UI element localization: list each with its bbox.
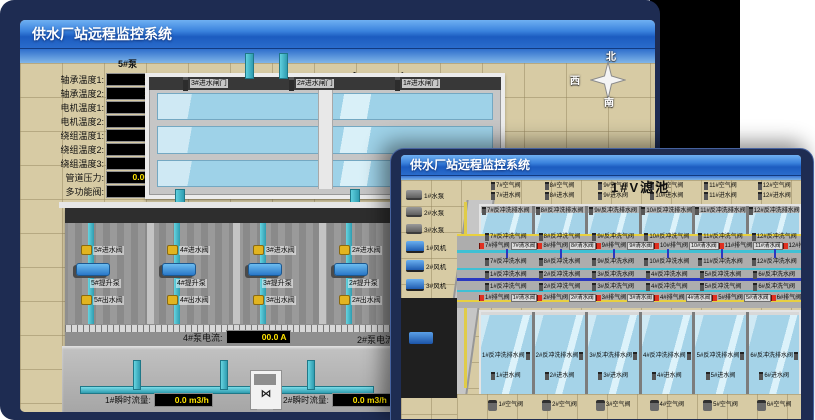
valve-icon[interactable] [757,400,766,411]
valve-icon[interactable] [700,271,704,279]
pump-label: 3#提升泵 [262,279,293,288]
valve-item[interactable]: 12#进水阀 [747,192,801,200]
parameter-label: 电机温度2: [28,115,104,128]
valve-item[interactable]: 4#排气阀 4#清水阀 [654,294,712,302]
meter-label: 4#泵电流: [183,331,223,344]
valve-label: 6#反冲洗排水阀 [750,353,793,360]
water-header-pipe [457,268,801,270]
parameter-label: 管道压力: [28,171,104,184]
valve-item[interactable]: 12#空气阀 [747,182,801,190]
valve-icon[interactable] [644,258,648,266]
outlet-valve-icon[interactable] [167,295,178,305]
valve-icon[interactable] [542,400,551,411]
valve-label: 6#排气阀 [777,295,801,302]
pump-icon[interactable] [162,263,196,276]
valve-icon[interactable] [704,182,708,190]
valve-label: 6#反冲洗气阀 [758,284,795,291]
inlet-valve-label: 2#进水阀 [351,246,382,255]
valve-icon[interactable] [592,271,596,279]
front-window-titlebar[interactable]: 供水厂站远程监控系统 [401,155,801,176]
water-pump-item: 3#水泵 [401,220,465,237]
valve-label: 5#反冲洗水阀 [705,272,742,279]
valve-label: 5#排气阀 [718,295,743,302]
valve-label: 1#排气阀 [485,295,510,302]
valve-item[interactable]: 12#反冲洗水阀 [747,258,801,266]
valve-item[interactable]: 1#排气阀 1#清水阀 [479,294,537,302]
valve-icon[interactable] [592,233,596,241]
desktop: 供水厂站远程监控系统 取水泵房 北 西 南 东 [0,0,815,420]
valve-item[interactable]: 2#反冲洗水阀 [533,271,587,279]
pump-icon[interactable] [406,190,422,200]
valve-label: 4#进水阀 [657,373,682,380]
valve-item[interactable]: 5#进水阀 [694,372,748,380]
back-window-title: 供水厂站远程监控系统 [32,26,172,42]
valve-icon[interactable] [758,192,762,200]
pump-bay: 5#进水阀 5#提升泵 5#出水阀 [68,223,154,324]
valve-label: 12#空气阀 [763,183,791,190]
backwash-drain-row-top: 7#反冲洗排水阀 8#反冲洗排水阀 9#反冲洗排水阀 10#反冲洗排水阀 [479,207,801,215]
water-header-pipe [457,250,801,253]
valve-icon[interactable] [545,372,549,380]
valve-item[interactable]: 8#空气阀 [533,182,587,190]
valve-icon[interactable] [650,400,659,411]
valve-label: 9#反冲洗排水阀 [594,208,637,215]
valve-label: 3#进水阀 [603,373,628,380]
parameter-label: 绕组温度1: [28,129,104,142]
valve-label: 3#反冲洗排水阀 [589,353,632,360]
valve-label: 4#反冲洗水阀 [651,272,688,279]
pump-icon[interactable] [334,263,368,276]
valve-icon[interactable] [759,372,763,380]
valve-label: 3#空气阀 [606,402,631,409]
valve-item[interactable]: 12#反冲洗气阀 [747,233,801,241]
backwash-water-row-bottom: 1#反冲洗水阀 2#反冲洗水阀 3#反冲洗水阀 4#反冲洗水阀 [479,271,801,279]
blower-icon[interactable] [406,241,424,253]
backwash-air-row-top: 7#反冲洗气阀 8#反冲洗气阀 9#反冲洗气阀 10#反冲洗气阀 [479,233,801,241]
valve-icon[interactable] [598,182,602,190]
inlet-valve-icon[interactable] [253,245,264,255]
valve-icon[interactable] [545,182,549,190]
valve-icon[interactable] [545,192,549,200]
bay-number [65,208,144,223]
valve-icon[interactable] [539,233,543,241]
scene-title: 1#V滤池 [611,177,670,196]
valve-icon[interactable] [539,258,543,266]
valve-item[interactable]: 6#反冲洗排水阀 [747,352,801,360]
inlet-valve-label: 4#进水阀 [179,246,210,255]
gate-valve-row: 3#进水闸门 2#进水闸门 1#进水闸门 [149,79,501,91]
valve-item[interactable]: 1#反冲洗水阀 [479,271,533,279]
valve-icon[interactable] [485,283,489,291]
valve-label: 5#反冲洗排水阀 [697,353,740,360]
valve-item[interactable]: 7#反冲洗水阀 [479,258,533,266]
inlet-valve-icon[interactable] [339,245,350,255]
compass-south-label: 南 [604,94,614,109]
backwash-drain-row-bottom: 1#反冲洗排水阀 2#反冲洗排水阀 3#反冲洗排水阀 4#反冲洗排水阀 [479,352,801,360]
valve-item[interactable]: 10#反冲洗气阀 [640,233,694,241]
parameter-label: 电机温度1: [28,101,104,114]
clean-water-valve-label[interactable]: 1#清水阀 [511,294,538,302]
blower-icon[interactable] [406,260,424,272]
valve-icon[interactable] [794,352,798,360]
pump-label: 2#水泵 [424,207,444,217]
alarm-indicator-icon [479,243,484,249]
valve-label: 2#进水阀 [550,373,575,380]
parameter-label: 轴承温度2: [28,87,104,100]
valve-icon[interactable] [491,192,495,200]
valve-label: 2#反冲洗排水阀 [536,353,579,360]
valve-label: 4#反冲洗气阀 [651,284,688,291]
gate-valve-label: 2#进水闸门 [296,79,334,88]
valve-item[interactable]: 6#反冲洗水阀 [747,271,801,279]
valve-icon[interactable] [485,233,489,241]
front-window-title: 供水厂站远程监控系统 [410,158,530,172]
valve-item[interactable]: 4#反冲洗水阀 [640,271,694,279]
valve-item[interactable]: 7#进水阀 [479,192,533,200]
outlet-valve-icon[interactable] [339,295,350,305]
blower-label: 2#风机 [426,261,446,271]
valve-label: 8#反冲洗排水阀 [541,208,584,215]
valve-label: 3#排气阀 [602,295,627,302]
valve-item[interactable]: 7#空气阀 [479,182,533,190]
flow-meter-icon: ⋈ [250,370,282,410]
valve-icon[interactable] [589,207,593,215]
gate-valve-label: 3#进水闸门 [190,79,228,88]
valve-icon[interactable] [695,207,699,215]
outlet-valve-icon[interactable] [81,295,92,305]
alarm-indicator-icon [771,295,776,301]
outlet-valve-label: 2#出水阀 [351,296,382,305]
valve-label: 10#反冲洗气阀 [649,234,689,241]
valve-item[interactable]: 5#反冲洗水阀 [694,271,748,279]
pump-bay: 3#进水阀 3#提升泵 3#出水阀 [240,223,326,324]
valve-label: 2#空气阀 [552,402,577,409]
valve-icon[interactable] [485,258,489,266]
inlet-valve-icon[interactable] [167,245,178,255]
parameter-label: 轴承温度1: [28,73,104,86]
valve-label: 11#反冲洗水阀 [703,259,743,266]
valve-item[interactable]: 8#反冲洗排水阀 [533,207,587,215]
valve-label: 3#反冲洗水阀 [597,272,634,279]
valve-label: 2#反冲洗水阀 [544,272,581,279]
bay-number [223,208,302,223]
clean-water-valve-label[interactable]: 7#清水阀 [511,242,538,250]
pump-label: 1#水泵 [424,190,444,200]
pump-icon[interactable] [76,263,110,276]
valve-item[interactable]: 8#排气阀 8#清水阀 [537,242,595,250]
pump-bay: 4#进水阀 4#提升泵 4#出水阀 [154,223,240,324]
valve-item[interactable]: 2#反冲洗排水阀 [533,352,587,360]
gate-valve[interactable]: 2#进水闸门 [289,79,395,91]
valve-icon[interactable] [740,352,744,360]
valve-item[interactable]: 5#反冲洗气阀 [694,283,748,291]
valve-item[interactable]: 11#反冲洗水阀 [694,258,748,266]
valve-item[interactable]: 9#反冲洗水阀 [586,258,640,266]
valve-label: 7#反冲洗气阀 [490,234,527,241]
valve-label: 12#反冲洗排水阀 [754,208,800,215]
valve-item[interactable]: 12#排气阀 12#清水阀 [783,242,802,250]
outlet-valve-icon[interactable] [253,295,264,305]
outlet-valve-label: 3#出水阀 [265,296,296,305]
compass-icon: 北 西 南 东 [558,49,655,115]
valve-icon[interactable] [706,372,710,380]
valve-label: 1#反冲洗排水阀 [482,353,525,360]
water-pump-item: 2#水泵 [401,203,465,220]
valve-item[interactable]: 3#反冲洗水阀 [586,271,640,279]
valve-icon[interactable] [758,182,762,190]
valve-item[interactable]: 4#反冲洗排水阀 [640,352,694,360]
valve-icon[interactable] [749,207,753,215]
alarm-indicator-icon [596,295,601,301]
valve-item[interactable]: 3#排气阀 3#清水阀 [596,294,654,302]
valve-icon[interactable] [700,283,704,291]
valve-item[interactable]: 7#排气阀 7#清水阀 [479,242,537,250]
blower-label: 3#风机 [426,280,446,290]
valve-item[interactable]: 6#进水阀 [747,372,801,380]
valve-icon[interactable] [491,182,495,190]
machine-room [401,298,457,398]
valve-item[interactable]: 8#反冲洗气阀 [533,233,587,241]
inlet-valve-row-bottom: 1#进水阀 2#进水阀 3#进水阀 4#进水阀 [479,372,801,380]
valve-label: 6#空气阀 [767,402,792,409]
valve-icon[interactable] [646,283,650,291]
valve-icon[interactable] [646,271,650,279]
valve-icon[interactable] [488,400,497,411]
valve-item[interactable]: 11#进水阀 [694,192,748,200]
valve-icon[interactable] [539,271,543,279]
equipment-column: 1#水泵 2#水泵 3#水泵 1#风机 2 [401,186,465,294]
clean-water-valve-label[interactable]: 4#清水阀 [686,294,713,302]
meter-label: 1#瞬时流量: [105,394,151,406]
valve-icon[interactable] [598,192,602,200]
valve-item[interactable]: 1#反冲洗排水阀 [479,352,533,360]
pipe-stub [220,360,228,390]
valve-item[interactable]: 10#反冲洗水阀 [640,258,694,266]
compass-west-label: 西 [570,72,580,87]
valve-label: 11#排气阀 [725,243,753,250]
gate-valve-icon[interactable] [395,77,400,91]
valve-icon[interactable] [704,192,708,200]
valve-icon[interactable] [539,283,543,291]
valve-icon[interactable] [703,400,712,411]
valve-icon[interactable] [633,352,637,360]
valve-label: 5#反冲洗气阀 [705,284,742,291]
valve-label: 12#反冲洗气阀 [757,234,797,241]
valve-item[interactable]: 11#空气阀 [694,182,748,190]
blower-label: 1#风机 [426,242,446,252]
valve-icon[interactable] [753,283,757,291]
pump-icon[interactable] [248,263,282,276]
valve-icon[interactable] [687,352,691,360]
valve-icon[interactable] [698,233,702,241]
bay-number [302,208,381,223]
valve-label: 4#反冲洗排水阀 [643,353,686,360]
air-valve-row-bottom: 1#空气阀 2#空气阀 3#空气阀 4#空气阀 [479,400,801,411]
valve-item[interactable]: 2#空气阀 [533,400,587,411]
valve-item[interactable]: 3#反冲洗气阀 [586,283,640,291]
valve-icon[interactable] [598,372,602,380]
valve-item[interactable]: 4#进水阀 [640,372,694,380]
outlet-valve-label: 4#出水阀 [179,296,210,305]
valve-icon[interactable] [482,207,486,215]
valve-item[interactable]: 11#反冲洗气阀 [694,233,748,241]
inlet-valve-label: 3#进水阀 [265,246,296,255]
valve-icon[interactable] [753,271,757,279]
valve-item[interactable]: 1#反冲洗气阀 [479,283,533,291]
valve-label: 8#空气阀 [550,183,575,190]
pipe-stub [245,53,254,79]
water-pump-item: 1#水泵 [401,186,465,203]
valve-label: 8#进水阀 [550,193,575,200]
valve-item[interactable]: 5#反冲洗排水阀 [694,352,748,360]
valve-item[interactable]: 9#反冲洗排水阀 [586,207,640,215]
valve-label: 1#进水阀 [496,373,521,380]
gate-valve-icon[interactable] [183,77,188,91]
valve-icon[interactable] [698,258,702,266]
exhaust-valve-row-bottom: 1#排气阀 1#清水阀 2#排气阀 2#清水阀 3#排气阀 3#清水阀 [479,294,801,302]
valve-item[interactable]: 6#空气阀 [747,400,801,411]
valve-item[interactable]: 11#反冲洗排水阀 [694,207,748,215]
basin-pillar [318,90,333,189]
valve-icon[interactable] [644,233,648,241]
backwash-water-row-top: 7#反冲洗水阀 8#反冲洗水阀 9#反冲洗水阀 10#反冲洗水阀 [479,258,801,266]
valve-label: 8#反冲洗水阀 [544,259,581,266]
valve-label: 1#空气阀 [498,402,523,409]
valve-item[interactable]: 7#反冲洗排水阀 [479,207,533,215]
valve-item[interactable]: 2#反冲洗气阀 [533,283,587,291]
valve-item[interactable]: 7#反冲洗气阀 [479,233,533,241]
alarm-indicator-icon [479,295,484,301]
valve-icon[interactable] [596,400,605,411]
gate-valve-icon[interactable] [289,77,294,91]
valve-item[interactable]: 10#排气阀 10#清水阀 [654,242,719,250]
inlet-valve-icon[interactable] [81,245,92,255]
valve-label: 10#反冲洗排水阀 [646,208,692,215]
filter-grid: 7#空气阀 8#空气阀 9#空气阀 10#空气阀 [479,176,801,419]
valve-item[interactable]: 2#排气阀 2#清水阀 [537,294,595,302]
valve-label: 5#进水阀 [711,373,736,380]
valve-label: 4#排气阀 [660,295,685,302]
valve-label: 10#反冲洗水阀 [649,259,689,266]
valve-item[interactable]: 6#排气阀 6#清水阀 [771,294,801,302]
bay-number [144,208,223,223]
clean-water-valve-label[interactable]: 3#清水阀 [627,294,654,302]
valve-item[interactable]: 4#空气阀 [640,400,694,411]
valve-icon[interactable] [485,271,489,279]
valve-item[interactable]: 1#进水阀 [479,372,533,380]
valve-icon[interactable] [592,283,596,291]
valve-item[interactable]: 5#空气阀 [694,400,748,411]
inlet-valve-label: 5#进水阀 [93,246,124,255]
alarm-indicator-icon [537,295,542,301]
valve-label: 8#反冲洗气阀 [544,234,581,241]
valve-label: 9#反冲洗气阀 [597,234,634,241]
pump-current-meter: 4#泵电流: 00.0 A [183,330,291,344]
valve-icon[interactable] [526,352,530,360]
valve-icon[interactable] [536,207,540,215]
valve-item[interactable]: 3#进水阀 [586,372,640,380]
valve-item[interactable]: 9#排气阀 9#清水阀 [596,242,654,250]
valve-icon[interactable] [652,372,656,380]
clean-water-valve-label[interactable]: 11#清水阀 [753,242,782,250]
valve-label: 11#进水阀 [709,193,737,200]
alarm-indicator-icon [537,243,542,249]
flow-readout: 2#瞬时流量: 0.0 m3/h [283,393,391,407]
valve-item[interactable]: 1#空气阀 [479,400,533,411]
flow-meter-base [257,409,273,412]
clean-water-valve-label[interactable]: 8#清水阀 [569,242,596,250]
valve-icon[interactable] [752,258,756,266]
valve-item[interactable]: 11#排气阀 11#清水阀 [719,242,783,250]
flow-readout: 1#瞬时流量: 0.0 m3/h [105,393,213,407]
valve-label: 5#空气阀 [713,402,738,409]
alarm-indicator-icon [654,295,659,301]
valve-label: 7#进水阀 [496,193,521,200]
parameter-label: 绕组温度3: [28,157,104,170]
valve-label: 11#反冲洗排水阀 [700,208,746,215]
blower-item: 3#风机 [401,275,465,294]
valve-label: 4#空气阀 [660,402,685,409]
valve-item[interactable]: 4#反冲洗气阀 [640,283,694,291]
exhaust-valve-row-top: 7#排气阀 7#清水阀 8#排气阀 8#清水阀 9#排气阀 9#清水阀 [479,242,801,250]
valve-icon[interactable] [641,207,645,215]
valve-item[interactable]: 12#反冲洗排水阀 [747,207,801,215]
valve-label: 7#反冲洗水阀 [490,259,527,266]
pump-icon[interactable] [406,224,422,234]
gate-valve[interactable]: 1#进水闸门 [395,79,501,91]
valve-item[interactable]: 3#反冲洗排水阀 [586,352,640,360]
valve-label: 11#反冲洗气阀 [703,234,743,241]
back-window-titlebar[interactable]: 供水厂站远程监控系统 [20,20,655,49]
valve-item[interactable]: 5#排气阀 5#清水阀 [712,294,770,302]
valve-item[interactable]: 9#反冲洗气阀 [586,233,640,241]
clean-water-valve-label[interactable]: 2#清水阀 [569,294,596,302]
valve-item[interactable]: 8#进水阀 [533,192,587,200]
pump-label: 4#提升泵 [176,279,207,288]
valve-label: 2#反冲洗气阀 [544,284,581,291]
clean-water-valve-label[interactable]: 10#清水阀 [689,242,719,250]
valve-item[interactable]: 8#反冲洗水阀 [533,258,587,266]
pump-icon[interactable] [406,207,422,217]
pump-label: 2#提升泵 [348,279,379,288]
outlet-valve-label: 5#出水阀 [93,296,124,305]
pipe-stub [307,360,315,390]
valve-icon[interactable] [592,258,596,266]
valve-icon[interactable] [752,233,756,241]
valve-label: 12#进水阀 [763,193,791,200]
compass-north-label: 北 [606,49,616,63]
gate-valve[interactable]: 3#进水闸门 [183,79,289,91]
valve-label: 3#反冲洗气阀 [597,284,634,291]
clean-water-valve-label[interactable]: 9#清水阀 [627,242,654,250]
valve-item[interactable]: 6#反冲洗气阀 [747,283,801,291]
valve-item[interactable]: 10#反冲洗排水阀 [640,207,694,215]
pipe-stub [279,53,288,79]
valve-icon[interactable] [579,352,583,360]
valve-icon[interactable] [491,372,495,380]
alarm-indicator-icon [712,295,717,301]
filter-pool-scene: 1#V滤池 1#水泵 2#水泵 3#水泵 [401,176,801,419]
valve-label: 10#排气阀 [660,243,688,250]
clean-water-valve-label[interactable]: 5#清水阀 [744,294,771,302]
blower-icon[interactable] [406,279,424,291]
backwash-air-row-bottom: 1#反冲洗气阀 2#反冲洗气阀 3#反冲洗气阀 4#反冲洗气阀 [479,283,801,291]
valve-item[interactable]: 3#空气阀 [586,400,640,411]
alarm-indicator-icon [783,243,788,249]
gate-valve-label: 1#进水闸门 [402,79,440,88]
valve-item[interactable]: 2#进水阀 [533,372,587,380]
valve-label: 12#反冲洗水阀 [757,259,797,266]
